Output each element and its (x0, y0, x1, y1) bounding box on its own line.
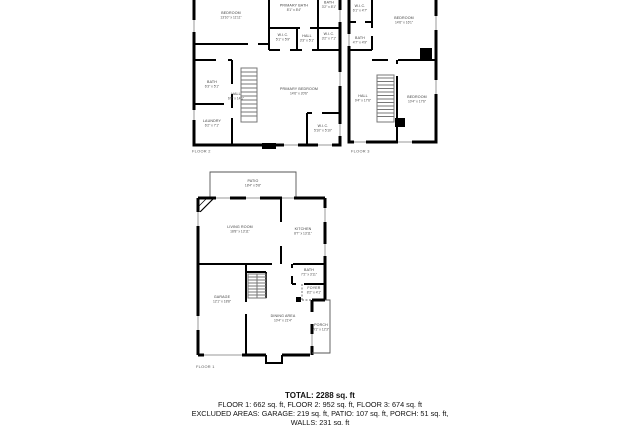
room-dims: 5'1" x 5'9" (276, 38, 291, 42)
room-dims: 13'10" x 11'11" (220, 16, 242, 20)
room-dims: 9'4" x 17'6" (355, 99, 372, 103)
room-dims: 8'7" x 13'11" (294, 232, 313, 236)
room-name: BATH (207, 80, 217, 84)
floor1-interior-walls (198, 198, 325, 355)
floor1-entry-step (266, 355, 282, 363)
room-dims: 3'2" x 7'1" (322, 37, 337, 41)
room-dims: 6'2" x 7'1" (205, 124, 220, 128)
floor3-wall-chase (420, 48, 432, 60)
total-area-line: TOTAL: 2288 sq. ft (0, 391, 640, 400)
room-dims: 12'1" x 18'8" (213, 300, 232, 304)
room-name: PORCH (314, 323, 328, 327)
room-dims: 18'8" x 13'11" (230, 230, 250, 234)
room-dims: 10'4" x 17'6" (408, 100, 427, 104)
room-name: PATIO (248, 179, 259, 183)
room-name: HALL (231, 92, 241, 96)
room-name: BATH (324, 1, 334, 5)
room-name: PRIMARY BATH (280, 4, 309, 8)
floor-2-label: FLOOR 2 (192, 149, 211, 154)
floor3-outer-walls (349, 0, 436, 142)
floor3-interior-walls (349, 0, 436, 142)
excluded-areas-line: EXCLUDED AREAS: GARAGE: 219 sq. ft, PATI… (0, 409, 640, 418)
room-dims: 4'7" x 4'9" (353, 41, 368, 45)
area-summary: TOTAL: 2288 sq. ft FLOOR 1: 662 sq. ft, … (0, 391, 640, 425)
room-dims: 6'3" x 5'1" (205, 85, 220, 89)
room-dims: 4'1" x 12'3" (313, 328, 330, 332)
room-name: PRIMARY BEDROOM (280, 87, 318, 91)
room-dims: 6'1" x 4'7" (353, 9, 368, 13)
room-dims: 14'6" x 16'1" (395, 21, 414, 25)
room-name: FOYER (307, 286, 320, 290)
floor2-stairs (241, 68, 257, 122)
room-dims: 14'6" x 20'6" (290, 92, 309, 96)
room-dims: 3'2" x 8'1" (322, 5, 337, 9)
room-name: W.I.C. (278, 33, 289, 37)
floor1-corner-diagonal (198, 198, 214, 214)
room-name: BATH (355, 36, 365, 40)
room-name: LAUNDRY (203, 119, 222, 123)
floor-3-label: FLOOR 3 (351, 149, 370, 154)
room-dims: 18'4" x 5'8" (245, 184, 262, 188)
floor-1-label: FLOOR 1 (196, 364, 215, 369)
floor-areas-line: FLOOR 1: 662 sq. ft, FLOOR 2: 952 sq. ft… (0, 400, 640, 409)
room-name: BATH (304, 268, 314, 272)
floor-plan-sheet: BEDROOM 13'10" x 11'11" PRIMARY BATH 8'1… (0, 0, 640, 425)
room-name: BEDROOM (407, 95, 427, 99)
room-name: BEDROOM (221, 11, 241, 15)
room-dims: 6'8" x 14'1" (228, 97, 245, 101)
room-dims: 3'3" x 5'1" (300, 39, 315, 43)
room-name: KITCHEN (295, 227, 312, 231)
floor2-wall-bump (262, 143, 276, 149)
room-name: HALL (302, 34, 312, 38)
floor1-stairs (248, 274, 266, 298)
room-name: BEDROOM (394, 16, 414, 20)
room-name: LIVING ROOM (227, 225, 253, 229)
excluded-areas-continued-line: WALLS: 231 sq. ft (0, 418, 640, 425)
room-name: W.I.C. (355, 4, 366, 8)
room-name: GARAGE (214, 295, 231, 299)
room-name: W.I.C. (318, 124, 329, 128)
room-dims: 5'10" x 5'10" (314, 129, 333, 133)
room-dims: 8'2" x 4'1" (307, 291, 322, 295)
floor3-wall-jog (395, 118, 405, 127)
room-name: HALL (358, 94, 368, 98)
floor1-entry-marker (296, 297, 301, 302)
room-dims: 10'4" x 21'4" (274, 319, 293, 323)
floor-1-plan: PATIO 18'4" x 5'8" LIVING ROOM 18'8" x 1… (196, 172, 331, 369)
room-name: W.I.C. (324, 32, 335, 36)
room-dims: 8'1" x 8'4" (287, 8, 302, 12)
floor1-outer-walls (198, 198, 325, 355)
floor-3-plan: W.I.C. 6'1" x 4'7" BEDROOM 14'6" x 16'1"… (347, 0, 439, 154)
floor3-stairs (377, 75, 394, 122)
floor-plan-drawing: BEDROOM 13'10" x 11'11" PRIMARY BATH 8'1… (0, 0, 640, 425)
floor-2-plan: BEDROOM 13'10" x 11'11" PRIMARY BATH 8'1… (192, 0, 343, 154)
room-dims: 7'2" x 3'11" (301, 273, 318, 277)
room-name: DINING AREA (271, 314, 296, 318)
